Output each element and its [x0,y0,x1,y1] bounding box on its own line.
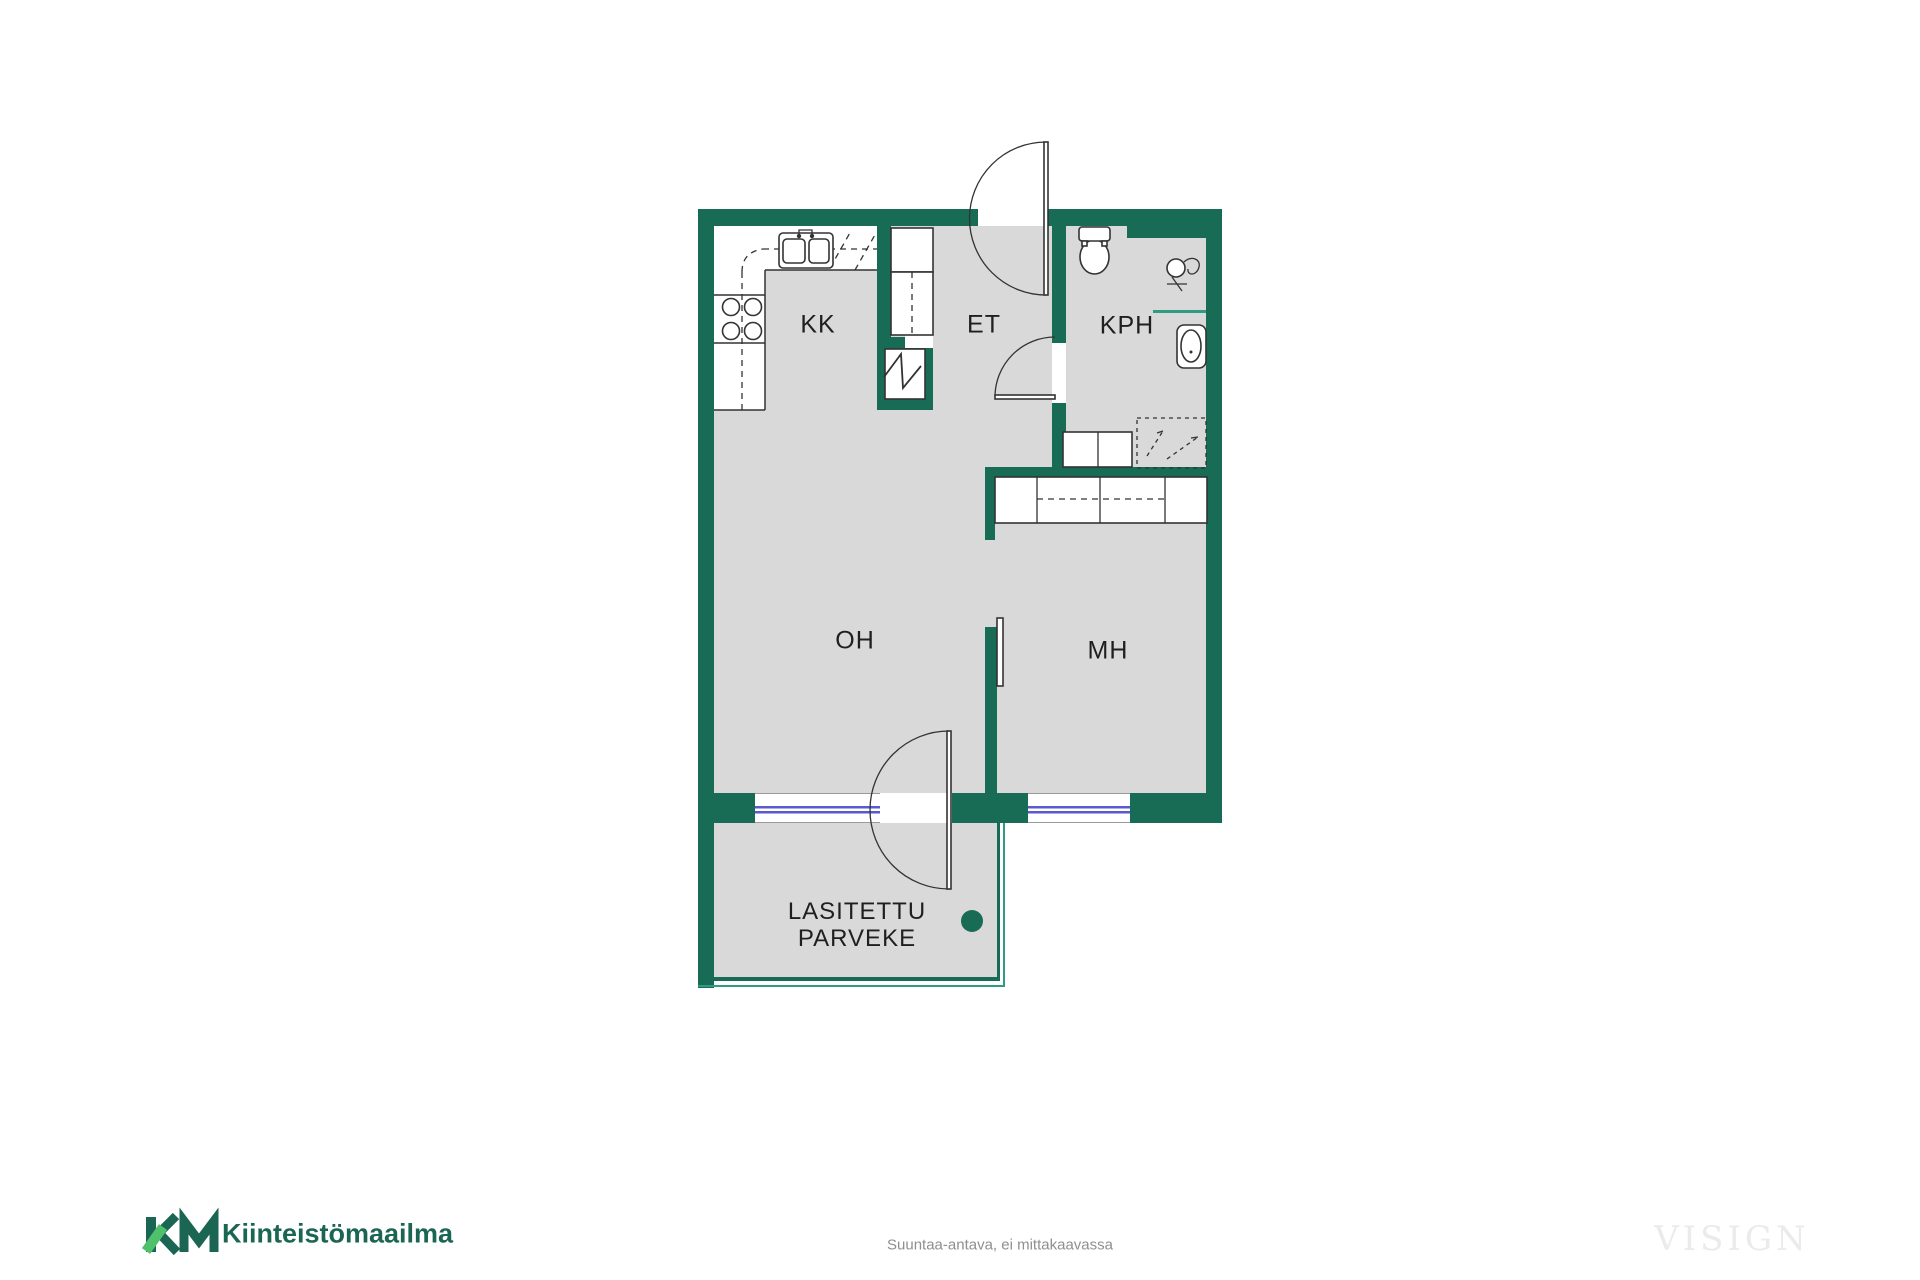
sliding-door-leaf [997,618,1003,686]
km-logo-mark [146,1216,214,1252]
disclaimer-text: Suuntaa-antava, ei mittakaavassa [887,1237,1113,1254]
hallway-closet [891,228,933,335]
room-label-oh: OH [835,627,875,656]
bathroom-cabinet [1063,432,1132,467]
room-label-kk: KK [800,311,835,340]
watermark-text: VISIGN [1654,1219,1810,1259]
duct-shaft-icon [884,349,925,399]
shower-glass-wall [1153,310,1206,313]
room-label-kph: KPH [1100,312,1154,341]
brand-name: Kiinteistömaailma [222,1219,453,1250]
balcony-label-line2: PARVEKE [788,925,926,952]
wardrobe [995,477,1207,523]
floor-plan-canvas: KK ET KPH OH MH LASITETTU PARVEKE Kiinte… [0,0,1920,1280]
kitchen-sink-icon [779,230,833,268]
balcony-marker-dot [961,910,983,932]
room-label-mh: MH [1088,637,1129,666]
room-label-et: ET [967,311,1001,340]
room-label-balcony: LASITETTU PARVEKE [788,898,926,952]
toilet-icon [1079,227,1110,274]
balcony-label-line1: LASITETTU [788,898,926,925]
floor-plan-drawing [0,0,1920,1280]
washbasin-icon [1177,325,1206,368]
